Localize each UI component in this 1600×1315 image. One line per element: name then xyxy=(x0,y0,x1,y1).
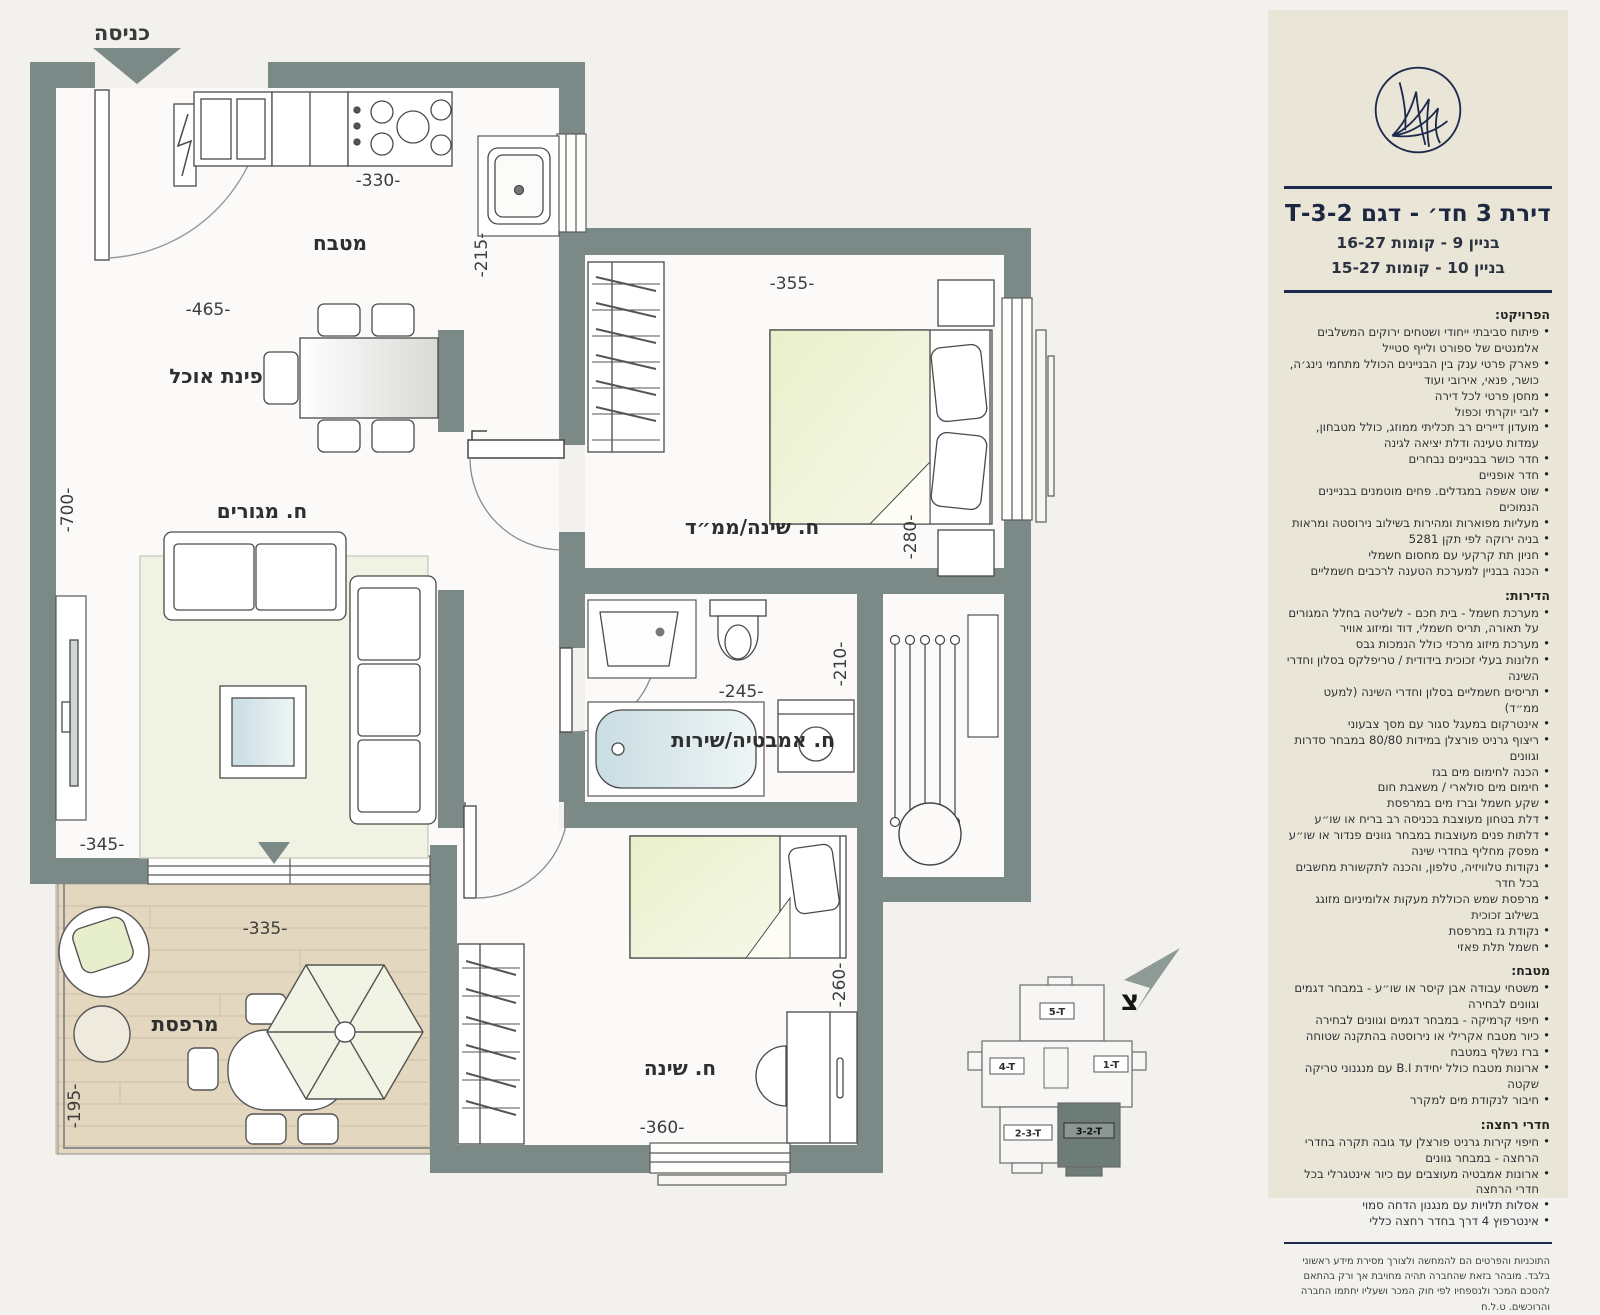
spec-bullet: מעליות מפוארות ומהירות בשילוב נירוסטה ומ… xyxy=(1286,516,1550,532)
spec-section-list: פיתוח סביבתי ייחודי ושטחים ירוקים המשלבי… xyxy=(1286,325,1550,580)
room-label-bathroom: ח. אמבטיה/שירות xyxy=(671,728,835,752)
spec-bullet: מפסק מחליף בחדרי שינה xyxy=(1286,844,1550,860)
balcony-sliding-door xyxy=(148,856,430,884)
spec-bullet: מועדון דיירים רב תכליתי ממוזג, כולל מטבח… xyxy=(1286,420,1550,452)
bedroom-window xyxy=(650,1143,790,1185)
dim-balcony-depth: -195- xyxy=(65,1084,85,1129)
spec-bullet: אינטרקום במעגל סגור עם מסך צבעוני xyxy=(1286,717,1550,733)
divider xyxy=(1284,1242,1552,1244)
building-info-1: בניין 9 - קומות 16-27 xyxy=(1278,234,1558,252)
spec-bullet: חלונות בעלי זכוכית בידודית / טריפלקס בסל… xyxy=(1286,653,1550,685)
spec-bullet: שקע חשמל וברז מים במרפסת xyxy=(1286,796,1550,812)
dim-dining-width: -465- xyxy=(186,300,231,320)
spec-bullet: נקודות טלוויזיה, טלפון, והכנה לתקשורת מח… xyxy=(1286,860,1550,892)
divider xyxy=(1284,290,1552,293)
spec-bullet: מערכת חשמל - בית חכם - לשליטה בחלל המגור… xyxy=(1286,606,1550,638)
spec-bullet: חדר כושר בבניינים נבחרים xyxy=(1286,452,1550,468)
spec-bullet: חיפוי קרמיקה - במבחר דגמים וגוונים לבחיר… xyxy=(1286,1013,1550,1029)
side-table xyxy=(74,1006,130,1062)
spec-bullet: נקודת גז במרפסת xyxy=(1286,924,1550,940)
room-label-living: ח. מגורים xyxy=(217,499,307,523)
dining-table xyxy=(300,338,438,418)
spec-bullet: ארונות מטבח כולל יחידת B.I עם מנגנוני טר… xyxy=(1286,1061,1550,1093)
dim-bathroom-width: -245- xyxy=(719,682,764,702)
spec-bullet: הכנה לחימום מים בגז xyxy=(1286,765,1550,781)
dim-master-depth: -280- xyxy=(901,515,921,560)
spec-bullet: תריסים חשמליים בסלון וחדרי השינה (למעט מ… xyxy=(1286,685,1550,717)
entrance-label: כניסה xyxy=(94,21,150,45)
spec-bullet: פיתוח סביבתי ייחודי ושטחים ירוקים המשלבי… xyxy=(1286,325,1550,357)
exterior-shutter xyxy=(1036,330,1046,522)
entrance-marker: כניסה xyxy=(93,21,181,84)
room-label-dining: פינת אוכל xyxy=(169,364,263,388)
key-plan-unit-23t: 2-3-T xyxy=(1015,1129,1042,1140)
dim-bedroom-depth: -260- xyxy=(830,963,850,1008)
spec-bullet: שוט אשפה במגדלים. פחים מוטמנים בבניינים … xyxy=(1286,484,1550,516)
spec-section-list: משטחי עבודה אבן קיסר או שו״ע - במבחר דגמ… xyxy=(1286,981,1550,1108)
spec-bullet: מערכת מיזוג מרכזי כולל הנמכות גבס xyxy=(1286,637,1550,653)
spec-bullet: אסלות תלויות עם מנגנון הדחה סמוי xyxy=(1286,1198,1550,1214)
spec-bullet: חניון תת קרקעי עם מחסום חשמלי xyxy=(1286,548,1550,564)
legal-disclaimer: התוכניות והפרטים הם להמחשה ולצורך מסירת … xyxy=(1286,1254,1550,1315)
stove xyxy=(348,92,452,166)
spec-bullet: דלת בטחון מעוצבת בכניסה רב בריח או שו״ע xyxy=(1286,812,1550,828)
spec-section-list: חיפוי קירות גרניט פורצלן עד גובה תקרה בח… xyxy=(1286,1135,1550,1230)
divider xyxy=(1284,186,1552,189)
north-label: צ xyxy=(1121,984,1139,1017)
kitchen-cabinet xyxy=(272,92,348,166)
master-window xyxy=(1002,298,1054,522)
fridge xyxy=(194,92,272,166)
room-label-master: ח. שינה/ממ״ד xyxy=(685,515,819,539)
key-plan-unit-5t: 5-T xyxy=(1049,1007,1066,1018)
entrance-arrow-icon xyxy=(93,48,181,84)
spec-bullet: מרפסת שמש הכוללת מעקות אלומיניום מזוגג ב… xyxy=(1286,892,1550,924)
spec-list: הפרויקט:פיתוח סביבתי ייחודי ושטחים ירוקי… xyxy=(1286,307,1550,1230)
spec-bullet: ארונות אמבטיה מעוצבים עם כיור אינטגרלי ב… xyxy=(1286,1167,1550,1199)
dim-kitchen-side: -215- xyxy=(472,233,492,278)
master-wardrobe xyxy=(588,262,664,452)
double-bed xyxy=(770,330,992,524)
spec-bullet: אינטרפוץ 4 דרך בחדר רחצה כללי xyxy=(1286,1214,1550,1230)
info-panel: דירת 3 חד׳ - דגם 3-2-T בניין 9 - קומות 1… xyxy=(1268,10,1568,1198)
key-plan-unit-1t: 1-T xyxy=(1103,1060,1120,1071)
room-label-balcony: מרפסת xyxy=(152,1012,219,1036)
dim-living-width: -345- xyxy=(80,835,125,855)
key-plan-unit-4t: 4-T xyxy=(999,1062,1016,1073)
room-label-kitchen: מטבח xyxy=(313,231,367,255)
north-indicator: צ xyxy=(1121,948,1180,1017)
spec-section-heading: הפרויקט: xyxy=(1286,307,1550,322)
bedroom-closet xyxy=(458,944,524,1144)
single-bed xyxy=(630,836,846,958)
dim-kitchen-top: -330- xyxy=(356,171,401,191)
spec-bullet: הכנה בבניין למערכת הטענה לרכבים חשמליים xyxy=(1286,564,1550,580)
dim-master-width: -355- xyxy=(770,274,815,294)
spec-bullet: חשמל תלת פאזי xyxy=(1286,940,1550,956)
spec-bullet: לובי יוקרתי וכפול xyxy=(1286,405,1550,421)
dim-balcony-width: -335- xyxy=(243,919,288,939)
kitchen-sink xyxy=(478,136,559,236)
spec-section-heading: הדירות: xyxy=(1286,588,1550,603)
dim-bedroom-width: -360- xyxy=(640,1118,685,1138)
spec-section-heading: חדרי רחצה: xyxy=(1286,1117,1550,1132)
spec-bullet: פארק פרטי ענק בין הבניינים הכולל מתחמי נ… xyxy=(1286,357,1550,389)
spec-section-heading: מטבח: xyxy=(1286,963,1550,978)
spec-bullet: חדר אופניים xyxy=(1286,468,1550,484)
building-info-2: בניין 10 - קומות 15-27 xyxy=(1278,259,1558,277)
boiler xyxy=(899,803,961,865)
kitchen-window xyxy=(557,134,586,232)
key-plan: 5-T 4-T 1-T 2-3-T 3-2-T xyxy=(968,977,1146,1176)
spec-bullet: ברז נשלף במטבח xyxy=(1286,1045,1550,1061)
vanity-sink xyxy=(588,600,696,678)
dim-living-height: -700- xyxy=(58,488,78,533)
spec-bullet: חימום מים סולארי / משאבת חום xyxy=(1286,780,1550,796)
spec-bullet: חיפוי קירות גרניט פורצלן עד גובה תקרה בח… xyxy=(1286,1135,1550,1167)
brand-logo-icon xyxy=(1372,64,1464,156)
spec-bullet: כיור מטבח אקרילי או נירוסטה בהתקנה שטוחה xyxy=(1286,1029,1550,1045)
electric-panel xyxy=(174,104,196,186)
room-label-bedroom: ח. שינה xyxy=(644,1056,716,1080)
dim-bathroom-depth: -210- xyxy=(831,642,851,687)
key-plan-unit-32t: 3-2-T xyxy=(1076,1127,1103,1138)
spec-bullet: משטחי עבודה אבן קיסר או שו״ע - במבחר דגמ… xyxy=(1286,981,1550,1013)
coffee-table xyxy=(220,686,306,778)
tv-unit xyxy=(56,596,86,820)
nightstand xyxy=(938,530,994,576)
spec-bullet: בניה ירוקה לפי תקן 5281 xyxy=(1286,532,1550,548)
floor-plan: כניסה מטבח פינת אוכל ח. מגורים ח. שינה/מ… xyxy=(0,0,1240,1208)
spec-bullet: חיבור לנקודת מים למקרר xyxy=(1286,1093,1550,1109)
spec-bullet: דלתות פנים מעוצבות במבחר גוונים פנדור או… xyxy=(1286,828,1550,844)
apartment-title: דירת 3 חד׳ - דגם 3-2-T xyxy=(1278,201,1558,227)
spec-bullet: מחסן פרטי לכל דירה xyxy=(1286,389,1550,405)
spec-bullet: ריצוף גרניט פורצלן במידות 80/80 במבחר סד… xyxy=(1286,733,1550,765)
nightstand xyxy=(938,280,994,326)
spec-section-list: מערכת חשמל - בית חכם - לשליטה בחלל המגור… xyxy=(1286,606,1550,956)
